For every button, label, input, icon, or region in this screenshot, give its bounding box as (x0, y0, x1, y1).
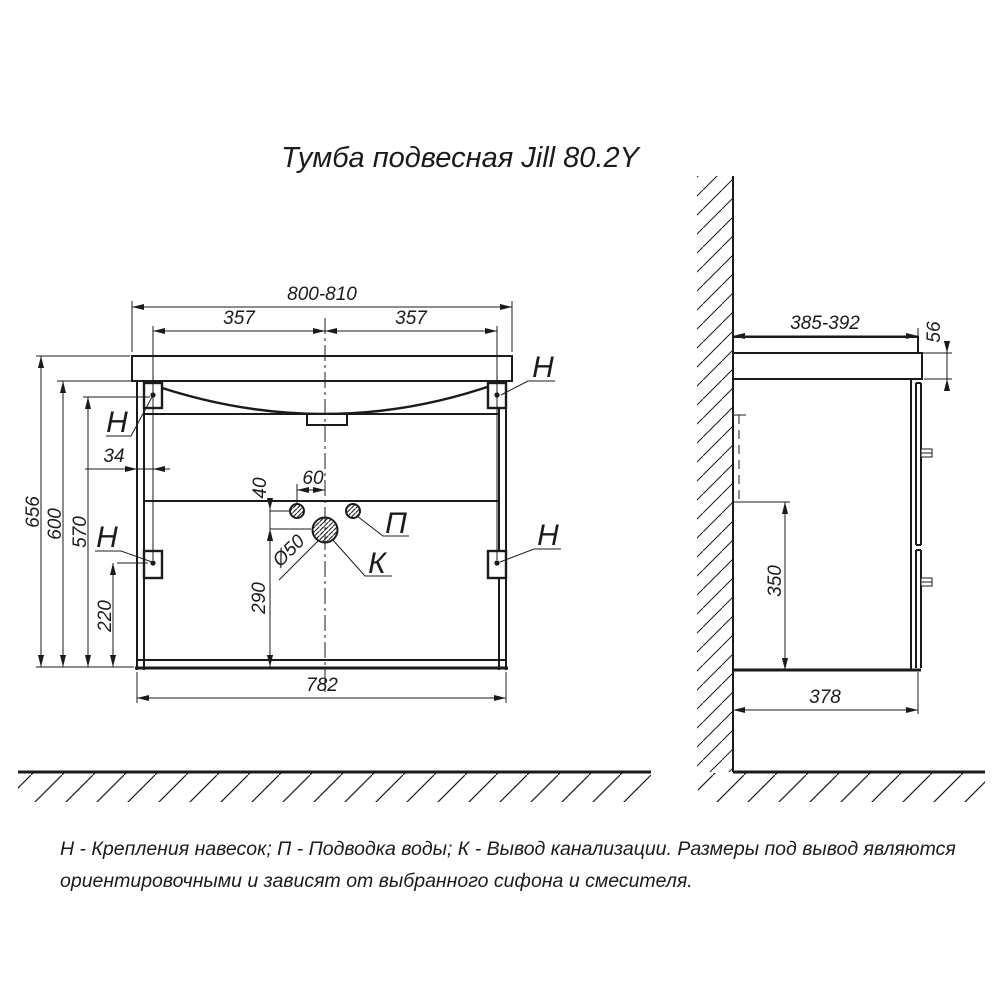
countertop-side-top (733, 337, 918, 353)
label-mount-top-left: Н (106, 406, 128, 439)
drawing-page: Тумба подвесная Jill 80.2Y (0, 0, 1000, 1000)
label-mount-bottom-right: Н (537, 519, 559, 552)
floor-hatching-right (698, 773, 985, 802)
dim-mount-spacing-right: 357 (395, 308, 428, 329)
water-hole-right (346, 504, 360, 518)
dim-niche-height: 350 (765, 565, 786, 597)
dim-water-vert-offset: 40 (250, 477, 271, 499)
label-drain: К (368, 547, 388, 580)
drain-notch (307, 414, 347, 425)
dim-mount-spacing-left: 357 (223, 308, 256, 329)
legend-line-1: Н - Крепления навесок; П - Подводка воды… (60, 838, 956, 860)
dim-water-horiz-offset: 60 (302, 468, 324, 489)
dim-drain-diameter: Ø50 (268, 531, 309, 572)
label-mount-top-right: Н (532, 351, 554, 384)
technical-drawing: Тумба подвесная Jill 80.2Y (0, 0, 1000, 1000)
drawing-title: Тумба подвесная Jill 80.2Y (281, 142, 642, 174)
dim-body-depth: 378 (809, 687, 841, 708)
floor-hatching-left (18, 773, 651, 802)
dim-width-overall: 800-810 (287, 284, 357, 305)
label-mount-bottom-left: Н (96, 521, 118, 554)
countertop-side-apron (733, 353, 922, 379)
legend-line-2: ориентировочными и зависят от выбранного… (60, 870, 693, 892)
dim-height-mount: 570 (70, 516, 91, 548)
drawer-handles (921, 449, 932, 586)
label-water: П (385, 507, 407, 540)
countertop-front (132, 356, 512, 381)
water-hole-left (290, 504, 304, 518)
sink-basin-curve (150, 384, 496, 414)
legend: Н - Крепления навесок; П - Подводка воды… (60, 838, 956, 892)
dim-depth-overall: 385-392 (790, 313, 860, 334)
mount-hole-bottom-right (494, 560, 499, 565)
wall-hatching (697, 176, 733, 772)
dim-mount-bottom: 220 (95, 600, 116, 633)
front-view (132, 356, 512, 670)
wall-and-floor (18, 176, 985, 802)
dim-mount-edge-offset: 34 (103, 446, 124, 467)
dim-apron-height: 56 (924, 321, 945, 343)
dim-height-cabinet: 600 (45, 508, 66, 540)
dim-drain-center-height: 290 (249, 582, 270, 615)
side-view (733, 337, 932, 670)
dim-height-overall: 656 (23, 496, 44, 528)
front-dimensions: 800-810 357 357 656 600 570 220 34 60 40… (23, 284, 512, 698)
drawer-fronts (916, 383, 921, 668)
dim-body-width: 782 (306, 675, 338, 696)
